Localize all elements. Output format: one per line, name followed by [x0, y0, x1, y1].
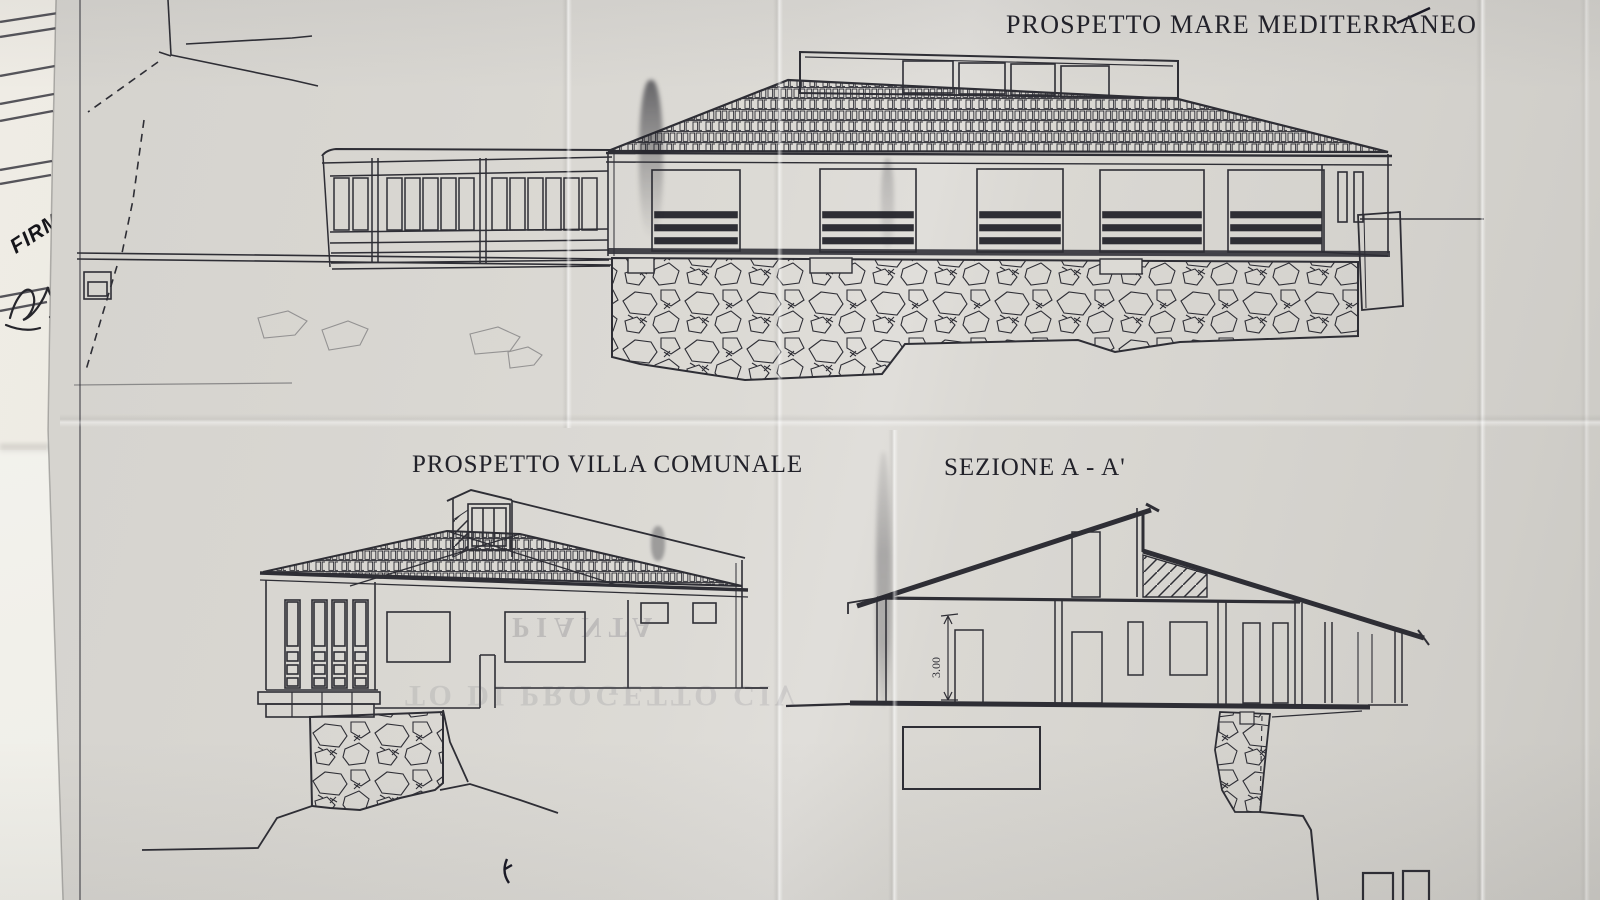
villa-elevation-drawing — [142, 490, 768, 850]
bleedthrough-text: TO DI PROGETTO CIV — [405, 678, 800, 712]
section-foundation — [903, 727, 1040, 789]
site-detail-box-inner — [88, 282, 107, 296]
sea-eave — [606, 153, 1392, 156]
faint-horizontal-line — [74, 383, 292, 385]
villa-small-window — [693, 603, 716, 623]
villa-porch-windows — [285, 600, 368, 688]
site-line — [168, 0, 171, 55]
photocopy-smudge — [876, 452, 891, 708]
bleedthrough-text: PIANTA — [512, 610, 659, 642]
section-door — [955, 630, 983, 703]
photocopy-smudge — [651, 526, 665, 561]
fold-crease-vertical — [1580, 0, 1590, 900]
sheet-edge — [48, 0, 63, 900]
sea-window — [652, 170, 740, 251]
villa-terrain — [142, 688, 768, 850]
fold-crease-vertical — [1476, 0, 1486, 900]
section-door — [1273, 623, 1288, 703]
sea-fascia — [606, 162, 1392, 165]
fold-crease-vertical — [773, 0, 783, 900]
sea-ground-line — [77, 259, 613, 265]
section-floor — [850, 703, 1370, 707]
site-dashed-line — [121, 120, 144, 258]
veranda-panes — [334, 178, 597, 230]
faint-rock-sketches — [258, 311, 542, 368]
site-line — [159, 52, 171, 56]
villa-window — [387, 612, 450, 662]
sea-roof — [608, 80, 1388, 152]
section-terrain-right — [1260, 812, 1429, 900]
section-clerestory-window — [1072, 532, 1100, 597]
sea-window — [977, 169, 1063, 252]
sea-slit-window — [1338, 172, 1347, 222]
pen-blot-mark — [505, 859, 512, 883]
photocopy-smudge — [881, 158, 894, 248]
dimension-label: 3.00 — [929, 657, 943, 678]
villa-porch-slabs — [258, 692, 380, 717]
section-pier-notch — [1240, 712, 1254, 724]
fold-crease-vertical — [562, 0, 572, 428]
section-window — [1128, 622, 1143, 675]
site-line — [186, 36, 312, 44]
sea-window — [1228, 170, 1324, 252]
drawing-linework: 3.00 — [0, 0, 1600, 900]
sea-elevation-title: PROSPETTO MARE MEDITERRANEO — [1006, 10, 1477, 40]
section-dimension: 3.00 — [929, 614, 958, 700]
photocopy-smudge — [639, 80, 663, 238]
sea-window — [1100, 170, 1204, 252]
fold-crease-horizontal — [60, 414, 1600, 427]
photo-of-architectural-drawing: FIRM — [0, 0, 1600, 900]
site-plan-fragment — [74, 0, 542, 900]
villa-stone-pier — [310, 712, 443, 810]
sea-ground-line — [77, 253, 612, 259]
section-door — [1072, 632, 1102, 703]
section-ceiling — [877, 598, 1300, 602]
sea-windows — [652, 169, 1324, 252]
villa-elevation-title: PROSPETTO VILLA COMUNALE — [412, 451, 803, 479]
section-window — [1170, 622, 1207, 675]
site-line — [171, 55, 318, 86]
section-title: SEZIONE A - A' — [944, 454, 1126, 482]
section-main-roof — [857, 510, 1151, 606]
sea-stone-base — [612, 258, 1358, 380]
section-door — [1243, 623, 1260, 703]
sea-wall-base — [608, 251, 1390, 254]
sea-window — [820, 169, 916, 252]
site-dashed-line — [88, 62, 158, 112]
